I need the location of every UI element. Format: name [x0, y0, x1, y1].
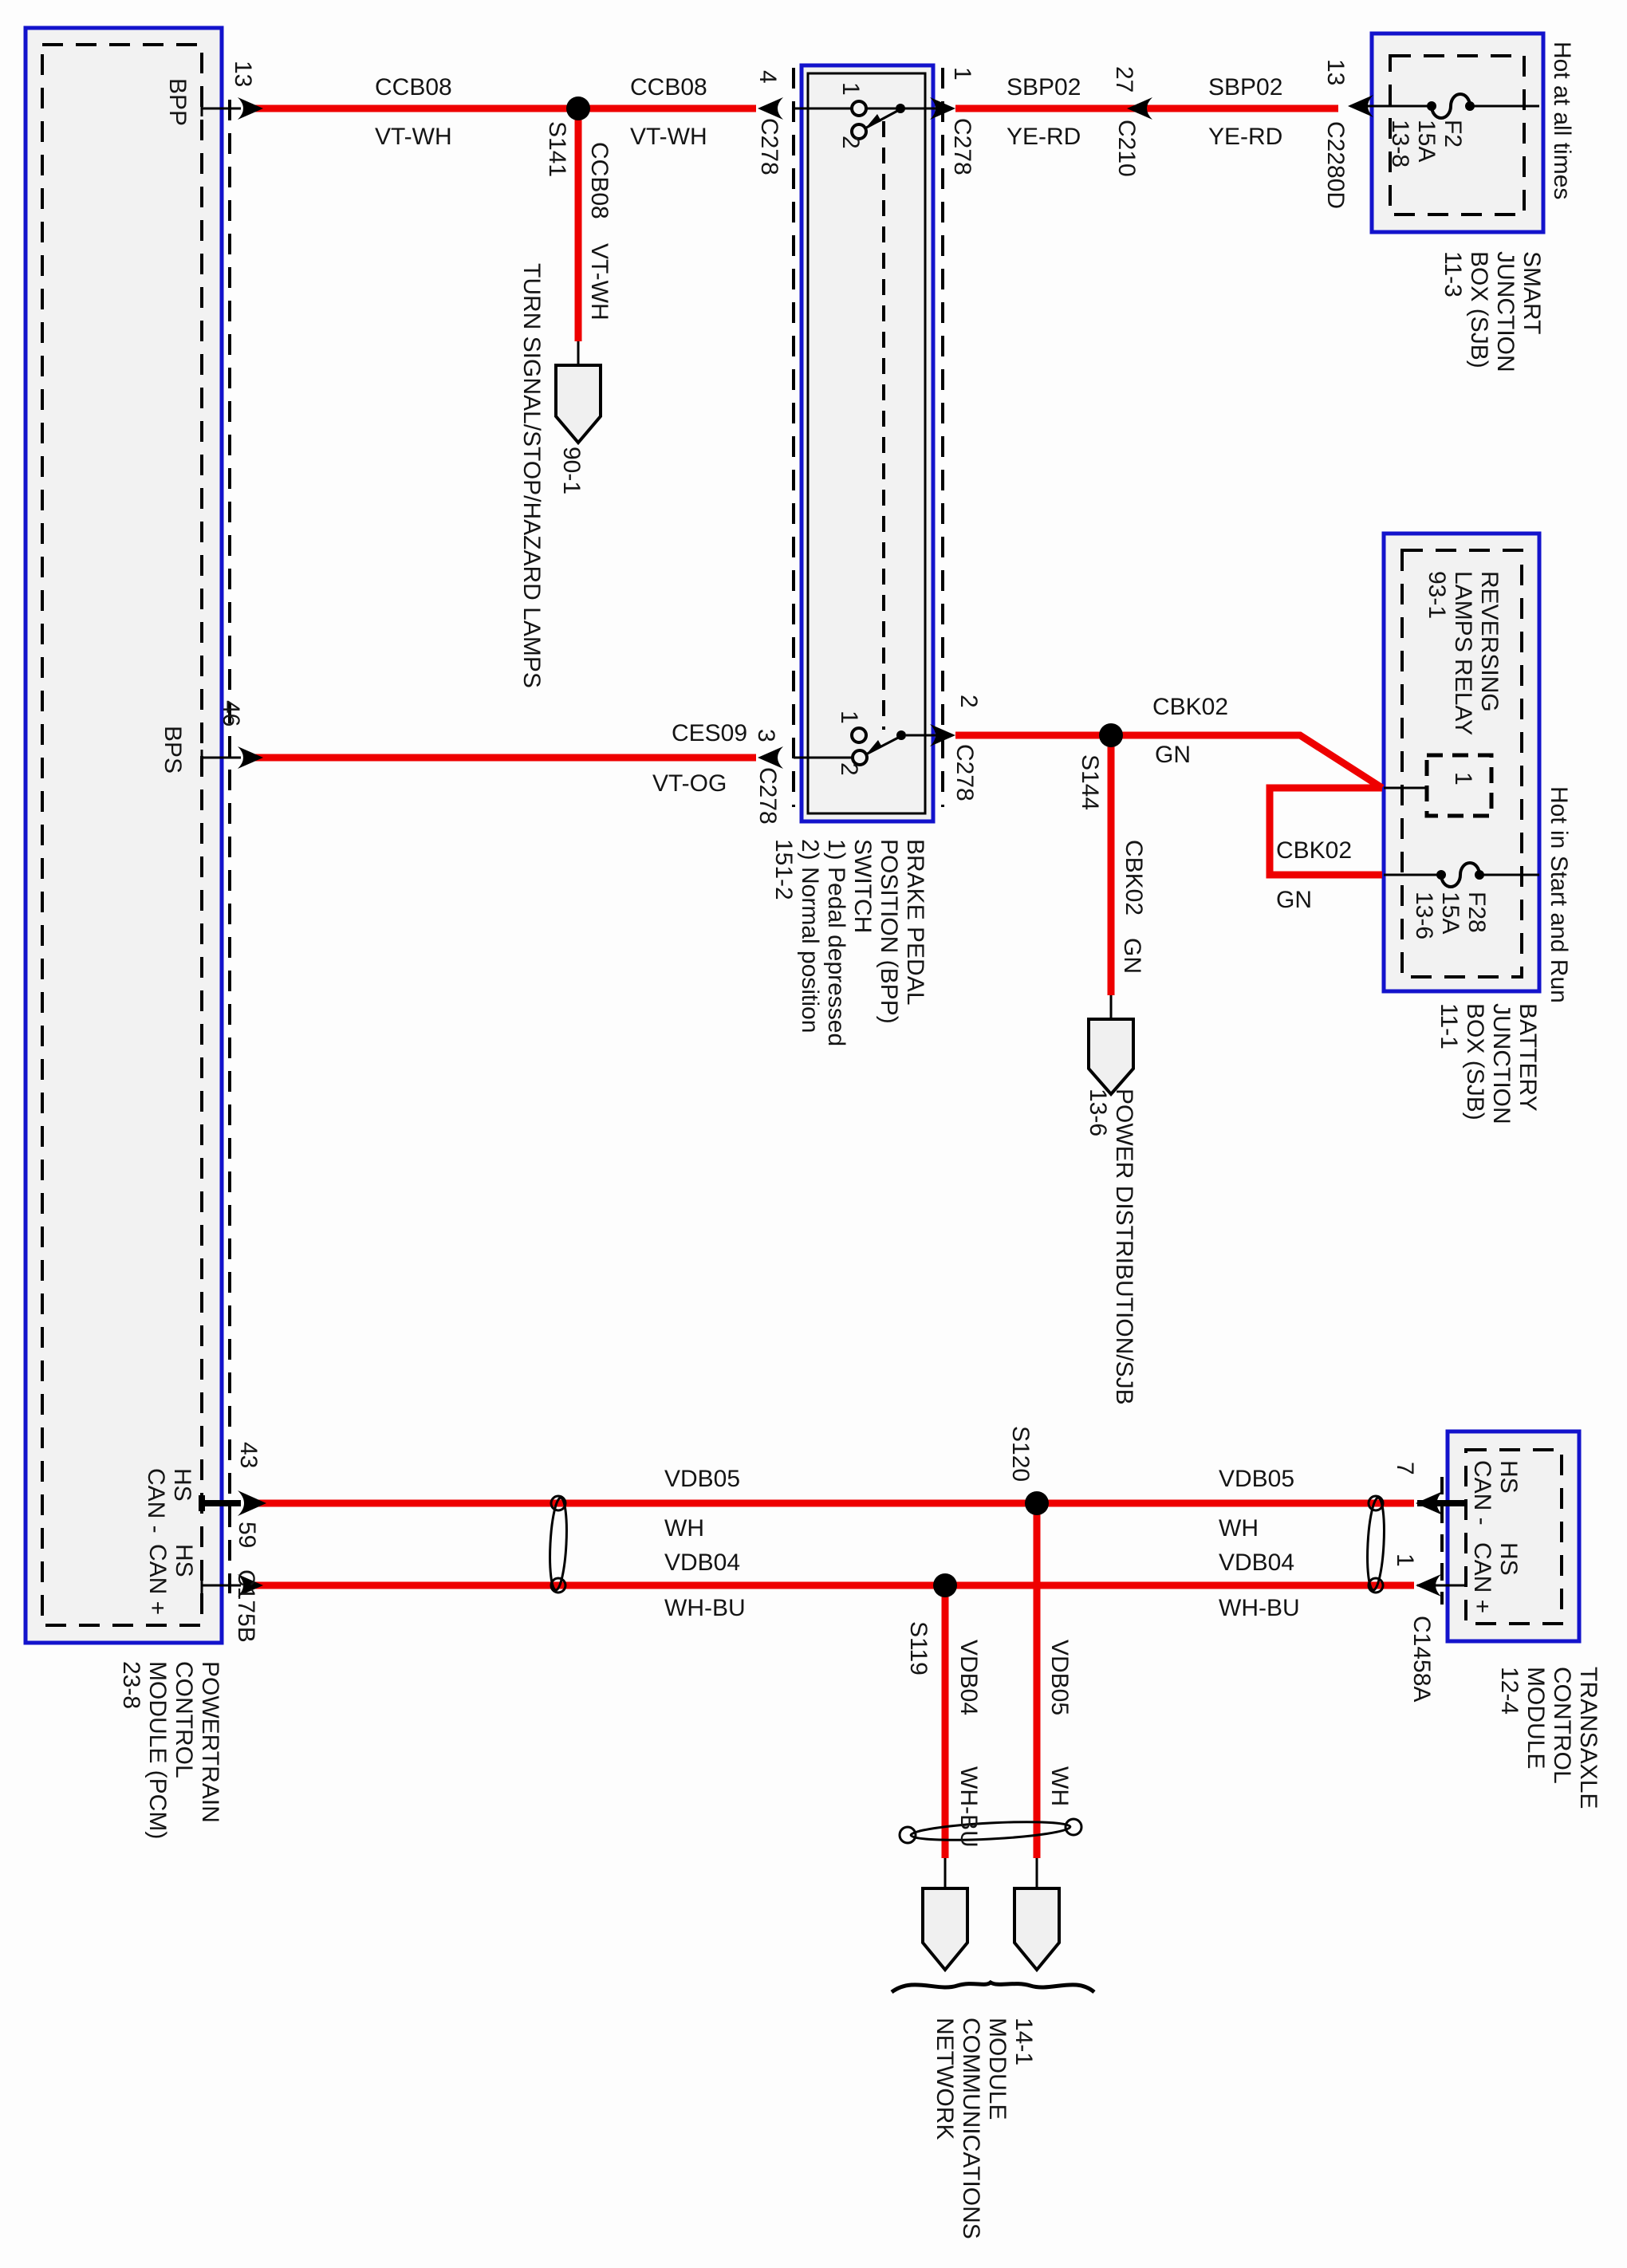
label-fuse-f2: F2 15A 13-8	[1387, 120, 1466, 167]
label-hot-all-times: Hot at all times	[1549, 41, 1575, 199]
label-vtwh-v: VT-WH	[586, 243, 613, 321]
connector-arrow-pcm-46	[238, 746, 263, 769]
label-vtwh-2: VT-WH	[630, 124, 707, 150]
label-s141: S141	[544, 121, 570, 177]
wiring-diagram: CCB08VT-WHCCB08VT-WHSBP02YE-RDSBP02YE-RD…	[0, 0, 1627, 2268]
splice-s144	[1099, 723, 1123, 747]
offpage-arrow-vdb05	[1014, 1888, 1059, 1970]
label-c278-rb: C278	[951, 744, 978, 801]
label-pin27: 27	[1111, 66, 1137, 93]
label-vdb05-v: VDB05	[1046, 1640, 1073, 1715]
label-pin7-tcm: 7	[1392, 1462, 1418, 1475]
label-hs-can-plus-pcm: HS CAN +	[144, 1544, 197, 1615]
label-s120: S120	[1007, 1426, 1034, 1482]
label-cbk02-h1: CBK02	[1152, 694, 1228, 720]
label-c175b: C175B	[233, 1569, 259, 1643]
label-bpp-switch-name: BRAKE PEDAL POSITION (BPP) SWITCH 1) Ped…	[770, 839, 928, 1046]
label-c278-rt: C278	[949, 118, 975, 175]
connector-arrow-c278-pin3	[758, 746, 783, 769]
label-pin43: 43	[235, 1442, 262, 1468]
label-hs-can-minus-tcm: HS CAN -	[1469, 1460, 1522, 1526]
label-gn-h1: GN	[1155, 742, 1191, 768]
label-vdb04-r: VDB04	[1219, 1549, 1294, 1576]
label-ces09: CES09	[672, 720, 747, 746]
label-s144: S144	[1077, 754, 1103, 810]
label-tcm-name: TRANSAXLE CONTROL MODULE 12-4	[1496, 1667, 1601, 1809]
label-s119: S119	[905, 1621, 932, 1675]
label-sw1-bot: 1	[836, 711, 862, 724]
label-relay-name: REVERSING LAMPS RELAY 93-1	[1424, 571, 1503, 735]
pcm-box	[26, 28, 230, 1643]
label-ccb08-2: CCB08	[630, 74, 707, 100]
label-pin46: 46	[218, 700, 244, 726]
label-gn-h2: GN	[1276, 887, 1312, 913]
label-pin2-sw: 2	[955, 695, 982, 708]
label-c210: C210	[1113, 120, 1140, 177]
label-sbp02-1: SBP02	[1007, 74, 1081, 100]
label-whbu-v: WH-BU	[955, 1766, 982, 1848]
offpage-arrow-90-1	[556, 365, 601, 443]
label-power-dist-name: POWER DISTRIBUTION/SJB 13-6	[1085, 1089, 1137, 1405]
label-vdb04-l: VDB04	[664, 1549, 740, 1576]
label-turn-lamps: TURN SIGNAL/STOP/HAZARD LAMPS	[518, 263, 545, 688]
label-fuse-f28: F28 15A 13-6	[1411, 892, 1490, 939]
label-bjb-name: BATTERY JUNCTION BOX (SJB) 11-1	[1436, 1003, 1541, 1124]
connector-arrow-pcm-43	[238, 1490, 266, 1516]
label-pin59: 59	[234, 1522, 260, 1548]
label-c1458a: C1458A	[1408, 1616, 1435, 1702]
label-pin13-pcm: 13	[230, 61, 256, 87]
label-vdb04-v: VDB04	[955, 1640, 982, 1715]
label-c278-lb: C278	[754, 767, 781, 825]
label-pin3: 3	[753, 729, 779, 742]
splice-s120	[1025, 1491, 1049, 1515]
network-brace	[892, 1983, 1094, 1992]
connector-arrow-pcm-13	[238, 97, 263, 120]
offpage-arrow-vdb04	[923, 1888, 967, 1970]
label-wh-v: WH	[1046, 1766, 1073, 1806]
label-cbk02-h2: CBK02	[1276, 837, 1352, 864]
label-bps: BPS	[160, 726, 186, 774]
label-vtwh-1: VT-WH	[375, 124, 452, 150]
label-whbu-l: WH-BU	[664, 1595, 746, 1621]
label-hs-can-plus-tcm: HS CAN +	[1469, 1542, 1522, 1613]
label-pin4: 4	[754, 70, 781, 84]
label-vdb05-r: VDB05	[1219, 1466, 1294, 1492]
label-gn-v: GN	[1119, 938, 1145, 974]
label-sbp02-2: SBP02	[1208, 74, 1282, 100]
label-wh-l: WH	[664, 1515, 704, 1542]
splice-s119	[933, 1573, 957, 1597]
label-c2280d: C2280D	[1322, 121, 1349, 209]
label-c278-lt: C278	[756, 118, 782, 175]
offpage-arrow-power-dist	[1089, 1019, 1133, 1094]
label-ref-90-1: 90-1	[558, 447, 585, 494]
label-sw2-top: 2	[837, 136, 864, 149]
twisted-pair-bottom	[911, 1819, 1071, 1843]
label-yerd-2: YE-RD	[1208, 124, 1282, 150]
label-relay-pin1: 1	[1450, 772, 1476, 786]
label-sw1-top: 1	[837, 82, 864, 96]
label-wh-r: WH	[1219, 1515, 1259, 1542]
label-vdb05-l: VDB05	[664, 1466, 740, 1492]
label-network-name: 14-1 MODULE COMMUNICATIONS NETWORK	[932, 2018, 1037, 2239]
splice-s141	[566, 96, 590, 120]
label-pin13-sjb: 13	[1322, 59, 1349, 85]
label-pcm-name: POWERTRAIN CONTROL MODULE (PCM) 23-8	[118, 1661, 223, 1839]
label-sjb-name: SMART JUNCTION BOX (SJB) 11-3	[1440, 251, 1545, 372]
network-arrow-stubs	[945, 1858, 1037, 1888]
label-cbk02-v: CBK02	[1121, 840, 1147, 915]
label-hs-can-minus-pcm: HS CAN -	[143, 1468, 195, 1534]
label-bpp: BPP	[164, 78, 191, 126]
schematic-canvas	[0, 0, 1627, 2268]
label-pin1-tcm: 1	[1392, 1553, 1418, 1567]
label-sw2-bot: 2	[836, 762, 862, 776]
connector-arrow-c278-pin4	[758, 97, 783, 120]
label-whbu-r: WH-BU	[1219, 1595, 1300, 1621]
label-vtog: VT-OG	[652, 770, 727, 797]
label-hot-start-run: Hot in Start and Run	[1546, 786, 1572, 1003]
label-ccb08-v: CCB08	[586, 142, 613, 219]
label-pin1-sw: 1	[949, 67, 975, 81]
label-ccb08-1: CCB08	[375, 74, 452, 100]
bpp-switch-box	[794, 65, 943, 821]
label-yerd-1: YE-RD	[1007, 124, 1081, 150]
